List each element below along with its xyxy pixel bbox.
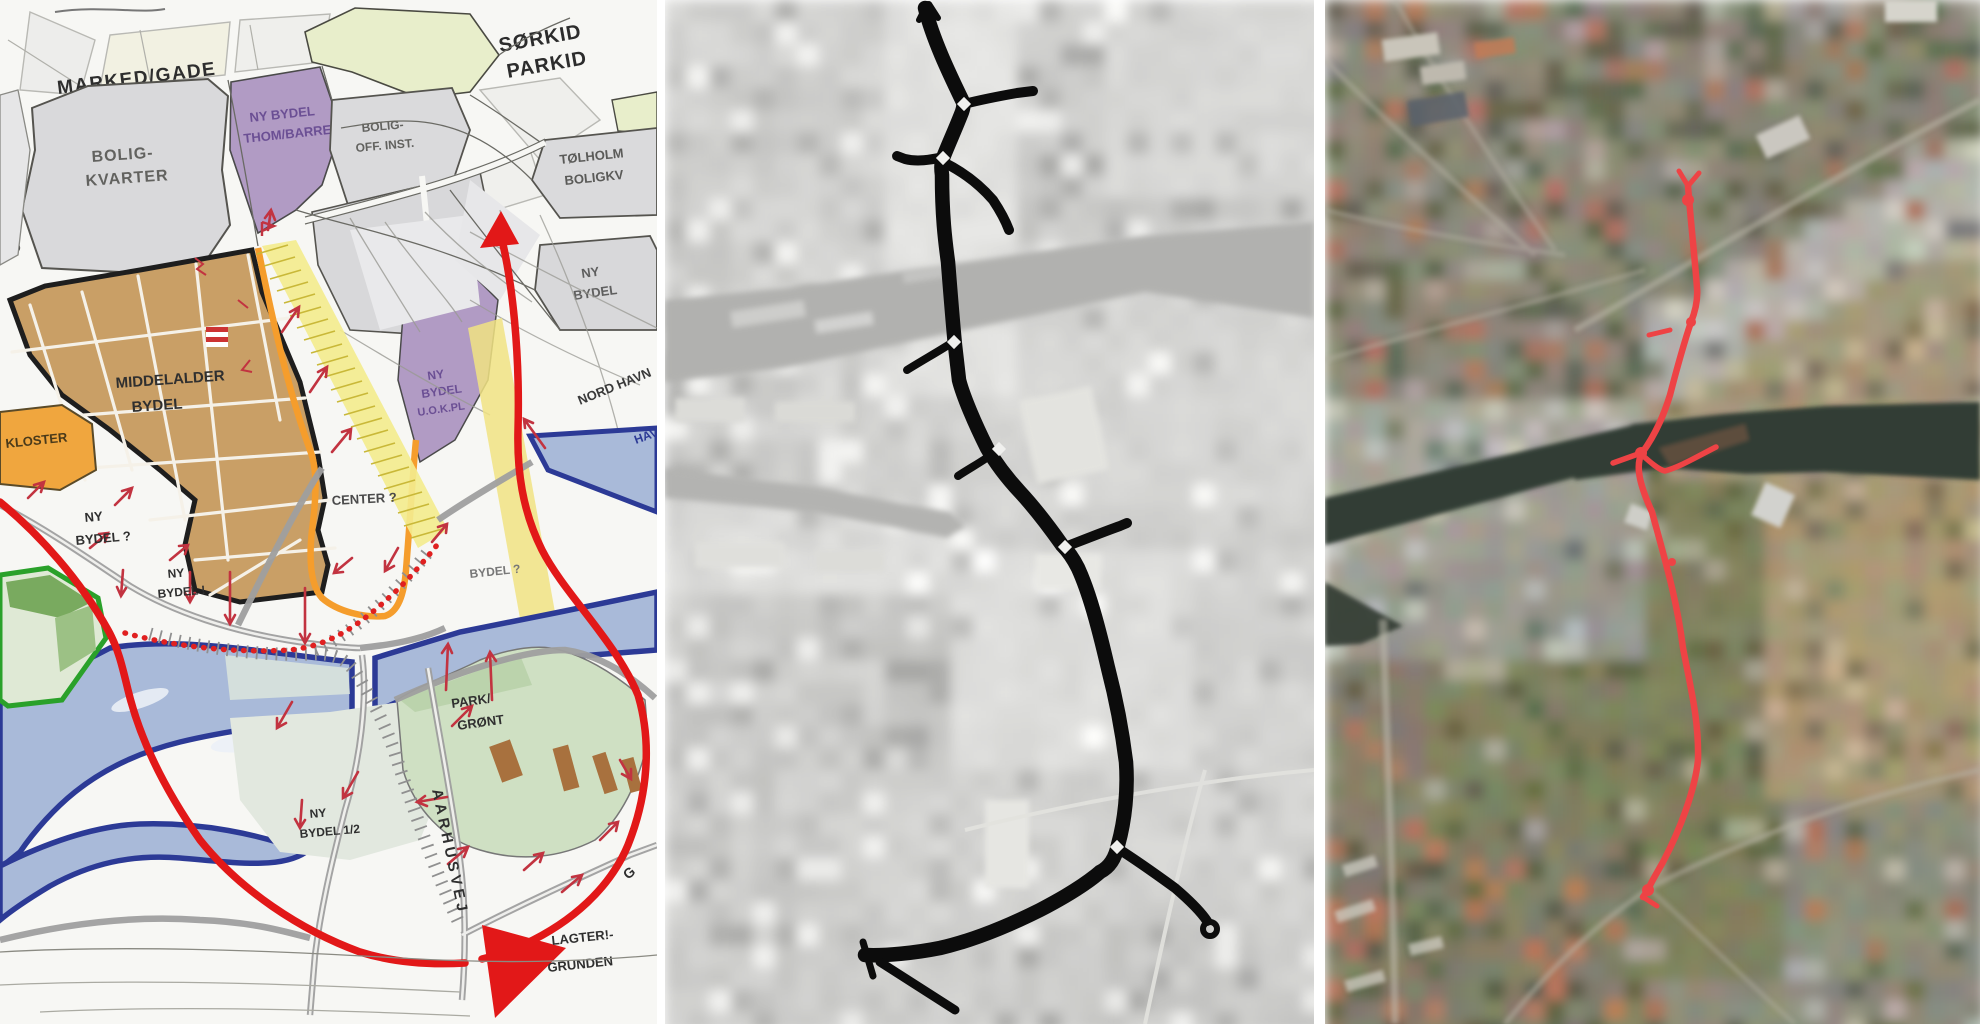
svg-text:NY: NY (309, 806, 327, 821)
svg-text:NY: NY (84, 508, 104, 525)
svg-text:NY: NY (580, 264, 600, 281)
svg-text:BYDEL: BYDEL (131, 395, 183, 416)
svg-text:NY: NY (167, 566, 185, 581)
svg-text:NY: NY (426, 367, 444, 383)
